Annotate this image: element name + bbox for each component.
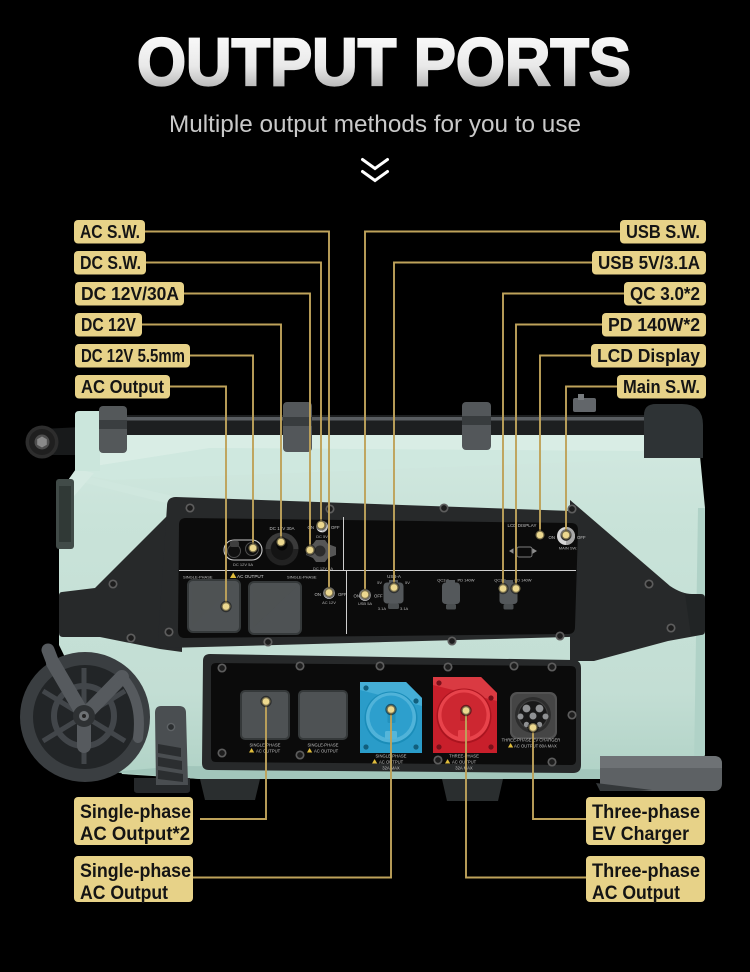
svg-text:32A MAX: 32A MAX [455,766,473,771]
svg-text:ON: ON [354,594,360,599]
svg-text:AC 12V: AC 12V [322,600,336,605]
svg-text:OUTPUT PORTS: OUTPUT PORTS [137,25,631,100]
svg-text:ON: ON [549,535,555,540]
svg-text:ON: ON [315,592,321,597]
svg-text:SINGLE-PHASE: SINGLE-PHASE [183,575,213,580]
svg-text:LCD DISPLAY: LCD DISPLAY [508,523,537,528]
svg-text:Single-phase: Single-phase [80,860,191,882]
svg-text:OFF: OFF [338,592,347,597]
svg-text:SINGLE-PHASE: SINGLE-PHASE [308,743,339,748]
svg-text:AC Output: AC Output [80,882,168,904]
svg-text:AC OUTPUT: AC OUTPUT [237,574,264,579]
svg-text:THREE-PHASE: THREE-PHASE [449,754,479,759]
svg-text:OFF: OFF [331,525,340,530]
svg-text:DC 12V 30A: DC 12V 30A [269,526,294,531]
svg-text:SINGLE-PHASE: SINGLE-PHASE [287,575,317,580]
svg-text:5V: 5V [377,580,382,585]
svg-text:USB 5V/3.1A: USB 5V/3.1A [598,252,700,273]
svg-text:DC 12V: DC 12V [81,314,137,335]
svg-text:AC OUTPUT: AC OUTPUT [256,749,281,754]
svg-text:EV Charger: EV Charger [592,823,689,845]
svg-text:DC 5V: DC 5V [316,534,328,539]
svg-text:OFF: OFF [577,535,586,540]
svg-text:5V: 5V [405,580,410,585]
svg-text:AC S.W.: AC S.W. [80,221,140,242]
svg-text:AC OUTPUT: AC OUTPUT [314,749,339,754]
svg-text:AC OUTPUT: AC OUTPUT [452,760,477,765]
svg-text:MAIN SW.: MAIN SW. [559,546,577,551]
svg-text:3.1A: 3.1A [400,606,409,611]
svg-text:Main S.W.: Main S.W. [623,376,700,397]
svg-text:PD 140W: PD 140W [514,578,531,583]
svg-text:AC Output*2: AC Output*2 [80,823,190,845]
svg-text:DC 12V/30A: DC 12V/30A [81,283,179,304]
svg-text:AC Output: AC Output [81,376,164,397]
svg-text:Multiple output methods for yo: Multiple output methods for you to use [169,111,581,138]
svg-text:OFF: OFF [374,594,383,599]
svg-text:Single-phase: Single-phase [80,801,191,823]
svg-text:PD 140W*2: PD 140W*2 [608,314,700,335]
svg-text:THREE-PHASE EV CHARGER: THREE-PHASE EV CHARGER [502,738,561,743]
svg-text:USB 5A: USB 5A [358,601,373,606]
svg-text:Three-phase: Three-phase [592,860,700,882]
svg-text:Three-phase: Three-phase [592,801,700,823]
svg-text:AC Output: AC Output [592,882,680,904]
svg-text:3.1A: 3.1A [378,606,387,611]
svg-text:AC OUTPUT 80A MAX: AC OUTPUT 80A MAX [514,744,557,749]
svg-text:DC 12V 5A: DC 12V 5A [233,562,253,567]
svg-text:DC 12V 5.5mm: DC 12V 5.5mm [81,345,185,366]
svg-text:USB S.W.: USB S.W. [626,221,700,242]
svg-text:QC 3.0*2: QC 3.0*2 [630,283,700,304]
svg-text:PD 140W: PD 140W [457,578,474,583]
svg-text:LCD Display: LCD Display [597,345,701,366]
svg-text:DC S.W.: DC S.W. [80,252,141,273]
